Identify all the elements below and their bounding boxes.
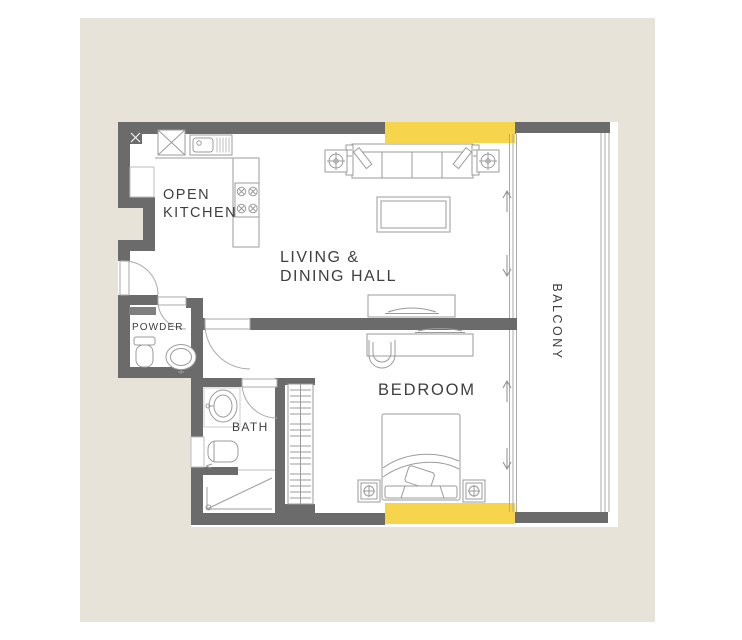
left-wall-notch <box>80 208 143 240</box>
powder-shelf <box>129 307 156 315</box>
desk <box>367 334 473 356</box>
wall-left-jog1 <box>118 197 155 208</box>
floor-lamp-left-icon <box>325 150 347 172</box>
fridge-icon <box>158 130 185 155</box>
window-bottom-icon <box>385 503 515 524</box>
lower-left-notch <box>80 378 191 527</box>
label-bedroom: BEDROOM <box>378 381 476 399</box>
sink-icon <box>190 135 232 155</box>
wall-divider <box>250 318 517 330</box>
wall-powder-top-corner <box>186 298 203 308</box>
sideboard <box>368 295 455 317</box>
label-bath: BATH <box>232 420 269 434</box>
shower-niche <box>191 437 204 467</box>
wall-bath-top <box>203 378 242 387</box>
sofa <box>346 144 479 178</box>
wardrobe <box>288 384 313 504</box>
label-living-line1: LIVING & <box>280 249 360 266</box>
label-open-kitchen-line2: KITCHEN <box>163 205 237 221</box>
wall-bottom <box>191 513 385 525</box>
wall-bath-bottom <box>203 467 238 475</box>
wall-wardrobe-cap-bottom <box>285 504 315 514</box>
floor-lamp-right-icon <box>477 150 499 172</box>
wall-powder-top <box>118 295 158 305</box>
wall-entry-above <box>118 251 130 261</box>
label-living-line2: DINING HALL <box>280 268 397 285</box>
floor-plan-page: OPEN KITCHEN LIVING & DINING HALL POWDER… <box>0 0 742 640</box>
floor-plan-svg: OPEN KITCHEN LIVING & DINING HALL POWDER… <box>0 0 742 640</box>
label-powder: POWDER <box>132 322 184 333</box>
wall-left-jog2 <box>118 240 155 251</box>
window-top-icon <box>385 122 515 143</box>
wall-balcony-bottom <box>515 512 608 523</box>
wall-powder-bottom <box>118 367 203 378</box>
wall-bath-right <box>275 378 285 513</box>
nightstand-right <box>463 480 485 502</box>
hob-icon <box>235 183 259 217</box>
wall-left-inset <box>143 208 155 242</box>
label-open-kitchen-line1: OPEN <box>163 187 210 203</box>
wall-balcony-top <box>516 122 610 133</box>
bed <box>382 414 460 500</box>
coffee-table <box>377 197 450 232</box>
wall-niche <box>130 167 154 197</box>
wall-left-upper <box>118 122 130 208</box>
wall-divider-west <box>191 318 205 330</box>
nightstand-left <box>358 480 380 502</box>
washing-machine-icon <box>129 131 142 144</box>
wall-powder-left <box>118 305 130 367</box>
label-balcony: BALCONY <box>550 283 564 360</box>
powder-toilet-icon <box>134 337 155 367</box>
